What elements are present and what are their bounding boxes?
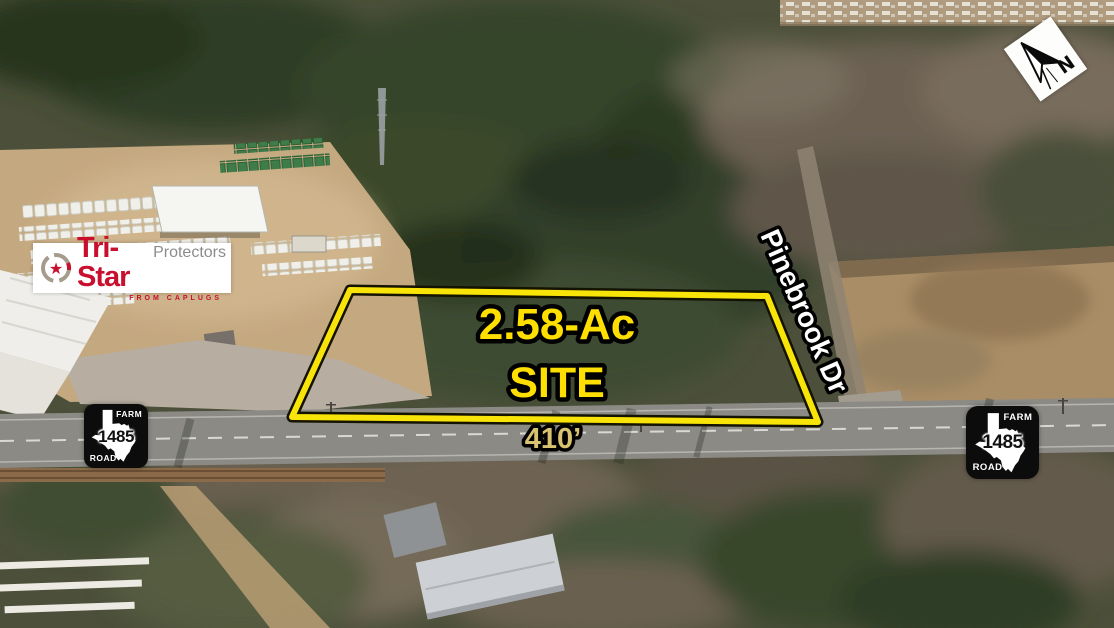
shield-road-text: ROAD: [973, 462, 1003, 473]
tristar-star-icon: ★: [38, 250, 74, 286]
star-glyph: ★: [49, 259, 63, 278]
shield-number-text: 1485: [98, 427, 134, 447]
shield-road-text: ROAD: [90, 453, 117, 463]
acreage-label: 2.58-Ac: [479, 300, 636, 349]
tristar-logo: ★ Tri-Star Protectors FROM CAPLUGS: [33, 243, 231, 293]
shield-farm-text: FARM: [1004, 412, 1033, 423]
logo-suffix-text: Protectors: [153, 245, 226, 261]
frontage-label: 410’: [525, 423, 581, 455]
logo-tagline-text: FROM CAPLUGS: [77, 295, 222, 302]
annotation-overlay: 2.58-Ac SITE 410’ Pinebrook Dr: [0, 0, 1114, 628]
shield-number-text: 1485: [982, 432, 1022, 454]
fm1485-shield-right: FARM 1485 ROAD: [966, 406, 1039, 479]
fm1485-shield-left: FARM 1485 ROAD: [84, 404, 148, 468]
logo-brand-text: Tri-Star: [77, 234, 152, 292]
site-label: SITE: [509, 359, 605, 407]
shield-farm-text: FARM: [116, 409, 142, 419]
aerial-site-photo: 2.58-Ac SITE 410’ Pinebrook Dr ★ Tri-Sta…: [0, 0, 1114, 628]
